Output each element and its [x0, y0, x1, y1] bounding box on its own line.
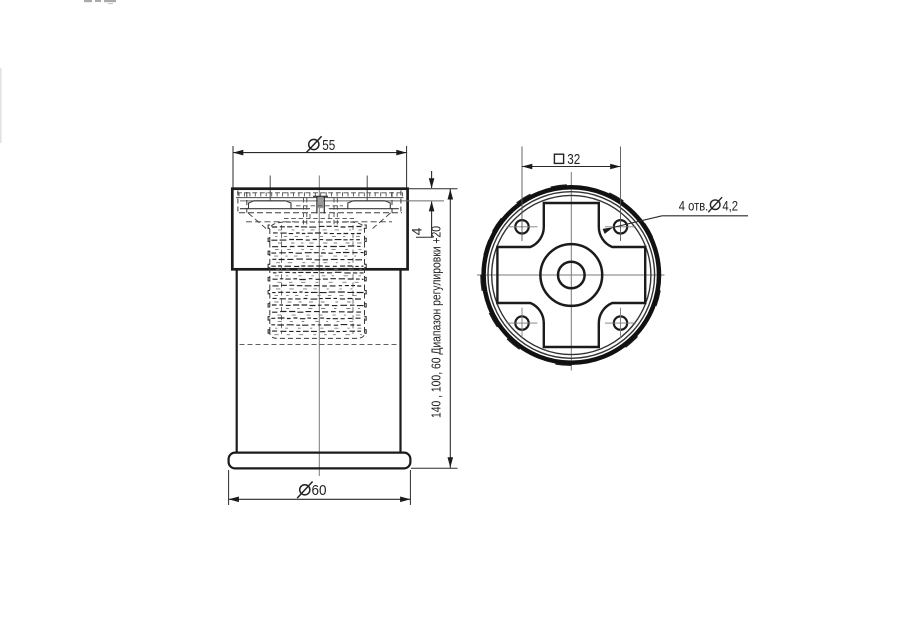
svg-text:32: 32 — [567, 151, 580, 168]
svg-text:4,2: 4,2 — [722, 198, 738, 213]
svg-text:140 , 100, 60 Диапазон регули: 140 , 100, 60 Диапазон регулировки +20 — [429, 226, 444, 418]
svg-text:60: 60 — [312, 482, 327, 499]
svg-text:55: 55 — [322, 137, 335, 154]
svg-text:4 отв.: 4 отв. — [679, 198, 709, 213]
svg-text:4: 4 — [409, 227, 425, 235]
